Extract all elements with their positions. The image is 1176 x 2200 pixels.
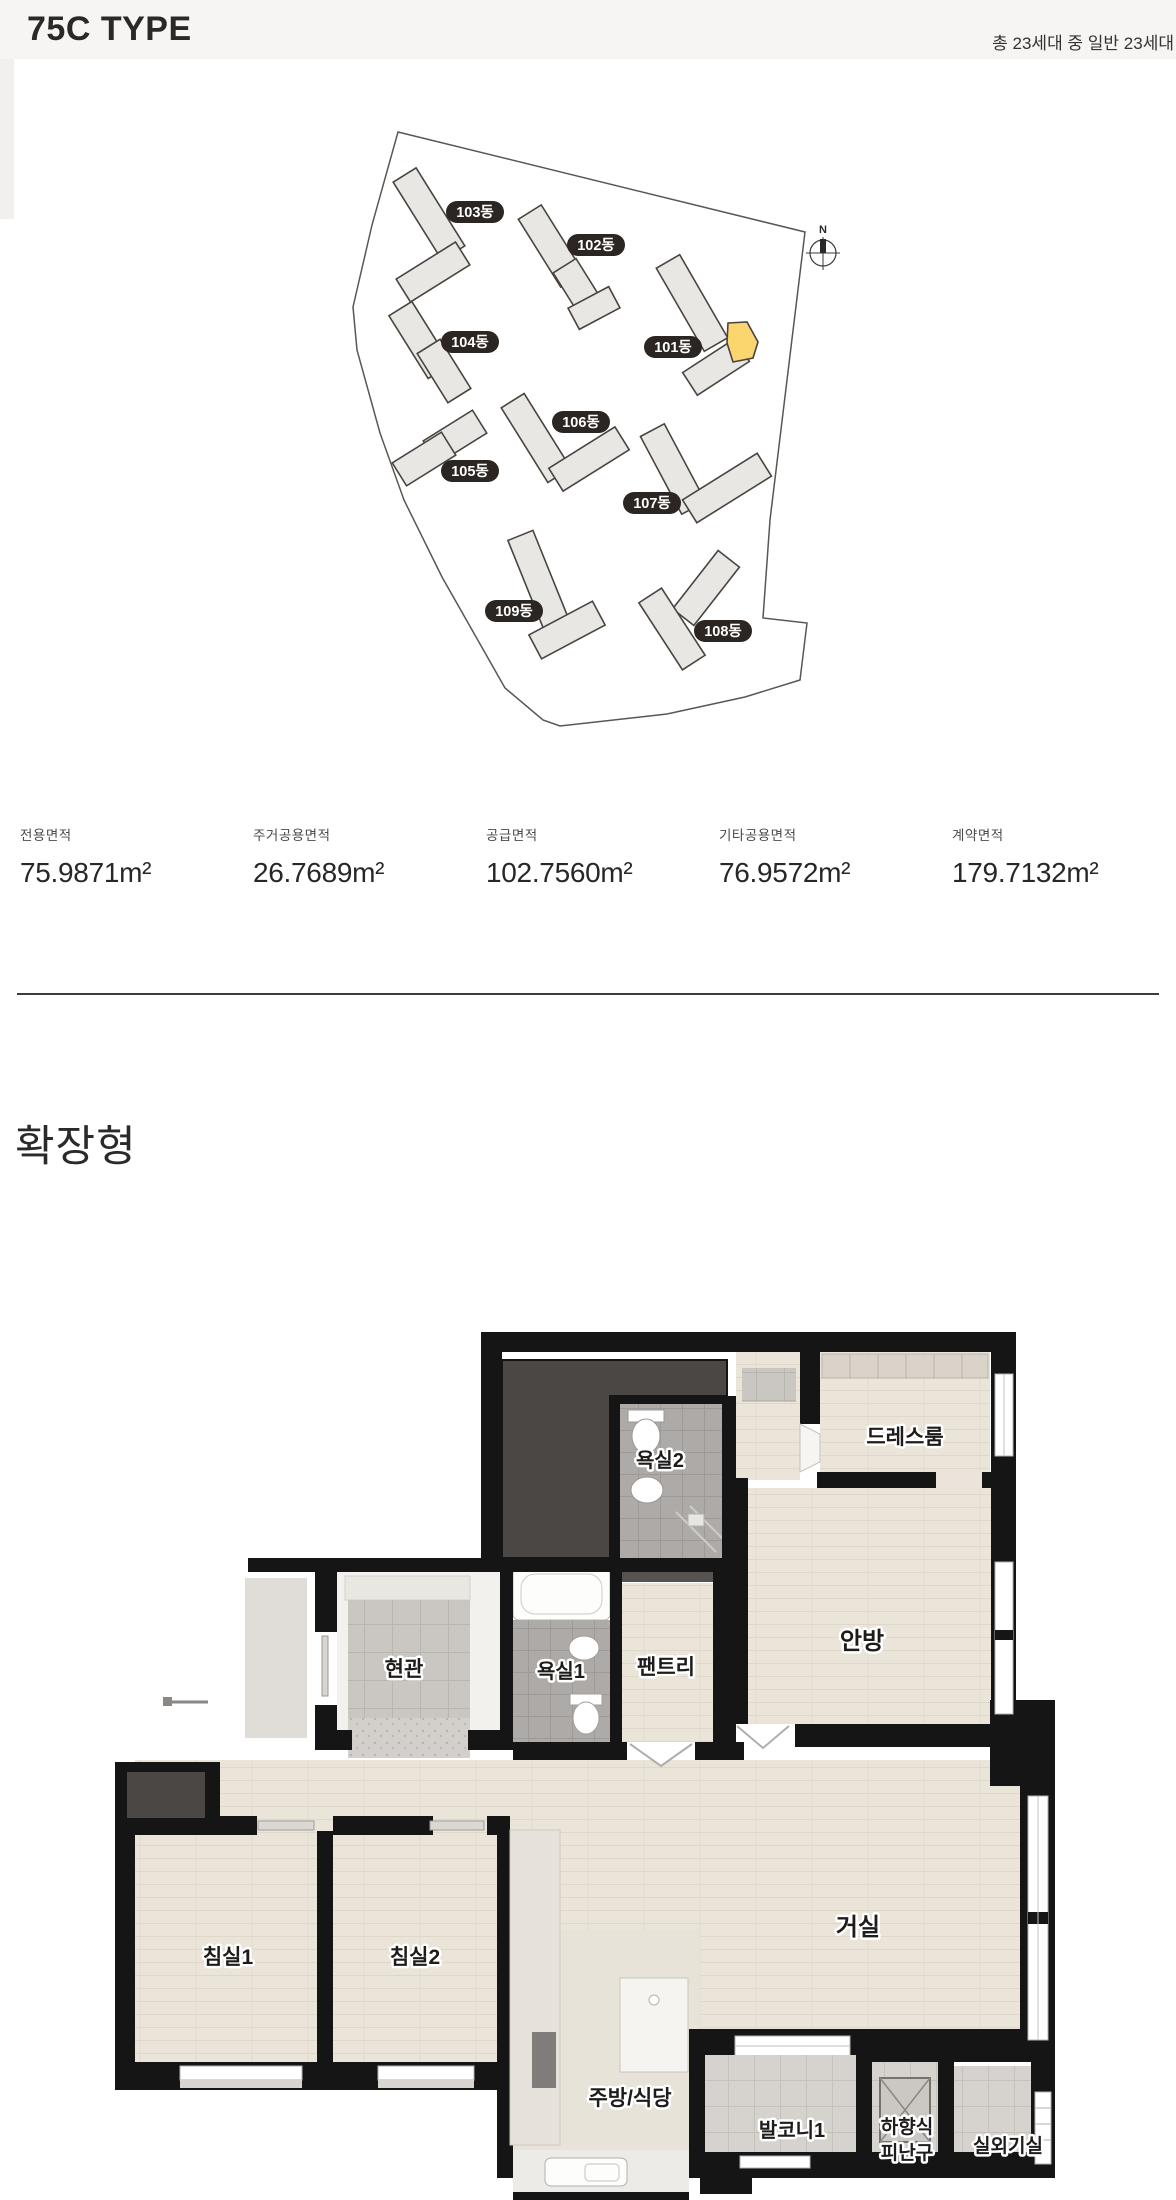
compass-icon: N bbox=[806, 224, 840, 270]
area-label: 전용면적 bbox=[20, 824, 253, 844]
room-label-거실: 거실 bbox=[836, 1914, 880, 1941]
area-col-exclusive: 전용면적 75.9871m² bbox=[20, 824, 253, 889]
entry-door-icon bbox=[163, 1697, 208, 1706]
dressroom-wardrobe bbox=[822, 1354, 988, 1378]
compass-north-label: N bbox=[819, 224, 827, 236]
floor-plan: 욕실2드레스룸안방현관욕실1팬트리침실1침실2거실주방/식당발코니1하향식피난구… bbox=[100, 1310, 1070, 2200]
building-106-shape bbox=[501, 394, 629, 492]
room-label-주방/식당: 주방/식당 bbox=[588, 2087, 671, 2110]
building-label-103동: 103동 bbox=[446, 201, 504, 223]
area-value: 179.7132m² bbox=[952, 857, 1176, 889]
svg-text:104동: 104동 bbox=[451, 334, 489, 351]
svg-text:108동: 108동 bbox=[704, 623, 742, 640]
area-col-other-shared: 기타공용면적 76.9572m² bbox=[719, 824, 952, 889]
highlighted-unit-75c bbox=[727, 322, 758, 362]
building-102-shape bbox=[518, 205, 620, 329]
room-label-팬트리: 팬트리 bbox=[637, 1656, 695, 1679]
building-label-102동: 102동 bbox=[567, 234, 625, 256]
area-summary-row: 전용면적 75.9871m² 주거공용면적 26.7689m² 공급면적 102… bbox=[20, 824, 1176, 889]
building-108-shape bbox=[639, 551, 740, 670]
area-col-supply: 공급면적 102.7560m² bbox=[486, 824, 719, 889]
exterior-core-block bbox=[245, 1578, 307, 1738]
room-label-드레스룸: 드레스룸 bbox=[866, 1426, 943, 1449]
svg-text:102동: 102동 bbox=[577, 237, 615, 254]
room-label-실외기실: 실외기실 bbox=[973, 2135, 1043, 2157]
upper-hall-mat bbox=[742, 1368, 796, 1402]
building-label-109동: 109동 bbox=[485, 600, 543, 622]
building-103-shape bbox=[393, 168, 470, 302]
page-title: 75C TYPE bbox=[27, 10, 192, 49]
unit-count-summary: 총 23세대 중 일반 23세대 bbox=[992, 29, 1174, 54]
area-value: 76.9572m² bbox=[719, 857, 952, 889]
room-label-안방: 안방 bbox=[840, 1628, 884, 1655]
room-bathroom1 bbox=[513, 1568, 610, 1742]
building-label-101동: 101동 bbox=[644, 336, 702, 358]
svg-text:106동: 106동 bbox=[562, 414, 600, 431]
duct-void-small bbox=[127, 1772, 205, 1818]
svg-text:107동: 107동 bbox=[633, 495, 671, 512]
building-label-107동: 107동 bbox=[623, 492, 681, 514]
left-edge-strip bbox=[0, 59, 14, 219]
area-label: 계약면적 bbox=[952, 824, 1176, 844]
area-label: 기타공용면적 bbox=[719, 824, 952, 844]
room-label-욕실2: 욕실2 bbox=[636, 1449, 684, 1472]
building-109-shape bbox=[508, 530, 605, 658]
page-header: 75C TYPE 총 23세대 중 일반 23세대 bbox=[0, 0, 1176, 59]
area-value: 26.7689m² bbox=[253, 857, 486, 889]
room-label-욕실1: 욕실1 bbox=[537, 1660, 585, 1683]
svg-text:103동: 103동 bbox=[456, 204, 494, 221]
section-heading: 확장형 bbox=[15, 1112, 137, 1174]
building-label-104동: 104동 bbox=[441, 331, 499, 353]
site-map: N 103동102동104동101동106동105동107동109동108동 bbox=[320, 110, 880, 760]
room-label-발코니1: 발코니1 bbox=[759, 2119, 825, 2142]
room-label-침실2: 침실2 bbox=[390, 1946, 440, 1969]
area-value: 102.7560m² bbox=[486, 857, 719, 889]
building-label-106동: 106동 bbox=[552, 411, 610, 433]
room-label-현관: 현관 bbox=[385, 1658, 424, 1681]
building-label-105동: 105동 bbox=[441, 460, 499, 482]
area-value: 75.9871m² bbox=[20, 857, 253, 889]
area-col-contract: 계약면적 179.7132m² bbox=[952, 824, 1176, 889]
room-label-침실1: 침실1 bbox=[203, 1946, 254, 1969]
area-label: 공급면적 bbox=[486, 824, 719, 844]
svg-text:101동: 101동 bbox=[654, 339, 692, 356]
building-label-108동: 108동 bbox=[694, 620, 752, 642]
svg-text:105동: 105동 bbox=[451, 463, 489, 480]
area-label: 주거공용면적 bbox=[253, 824, 486, 844]
area-col-shared-residential: 주거공용면적 26.7689m² bbox=[253, 824, 486, 889]
svg-text:109동: 109동 bbox=[495, 603, 533, 620]
section-divider bbox=[17, 993, 1159, 995]
room-bathroom2 bbox=[620, 1404, 722, 1558]
